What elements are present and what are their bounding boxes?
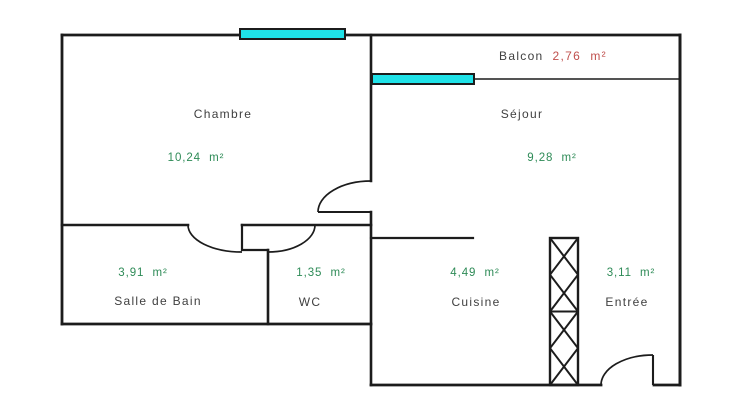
area-label-chambre: 10,24 m² bbox=[168, 152, 225, 164]
area-label-cuisine: 4,49 m² bbox=[450, 267, 499, 279]
column-cross-3 bbox=[550, 312, 578, 349]
door-arc-chambre bbox=[318, 181, 371, 212]
area-label-sejour: 9,28 m² bbox=[527, 152, 576, 164]
room-label-wc: WC bbox=[299, 295, 322, 309]
door-arc-entree bbox=[601, 355, 653, 385]
window-chambre bbox=[240, 29, 345, 39]
door-arc-wc bbox=[268, 225, 315, 252]
column-cross-1 bbox=[550, 238, 578, 275]
door-arc-salle-de-bain bbox=[188, 225, 242, 252]
room-label-cuisine: Cuisine bbox=[451, 295, 500, 309]
room-label-sejour: Séjour bbox=[501, 107, 544, 121]
room-label-entree: Entrée bbox=[605, 295, 648, 309]
window-sejour bbox=[372, 74, 474, 84]
column-cross-4 bbox=[550, 348, 578, 385]
floorplan-drawing bbox=[0, 0, 750, 420]
floorplan: Chambre 10,24 m² Séjour 9,28 m² Balcon 2… bbox=[0, 0, 750, 420]
room-label-chambre: Chambre bbox=[194, 107, 252, 121]
area-label-wc: 1,35 m² bbox=[296, 267, 345, 279]
room-label-salle-de-bain: Salle de Bain bbox=[114, 294, 202, 308]
area-label-salle-de-bain: 3,91 m² bbox=[118, 267, 167, 279]
wall-sdb-return bbox=[242, 225, 268, 250]
column-cross-2 bbox=[550, 275, 578, 312]
windows bbox=[240, 29, 474, 84]
area-label-entree: 3,11 m² bbox=[607, 267, 656, 279]
structural-column-hatch bbox=[550, 238, 578, 385]
doors bbox=[188, 181, 653, 385]
balcon-name: Balcon bbox=[499, 49, 544, 63]
area-label-balcon: 2,76 m² bbox=[553, 49, 607, 63]
room-label-balcon: Balcon 2,76 m² bbox=[499, 49, 607, 63]
walls bbox=[62, 35, 680, 385]
